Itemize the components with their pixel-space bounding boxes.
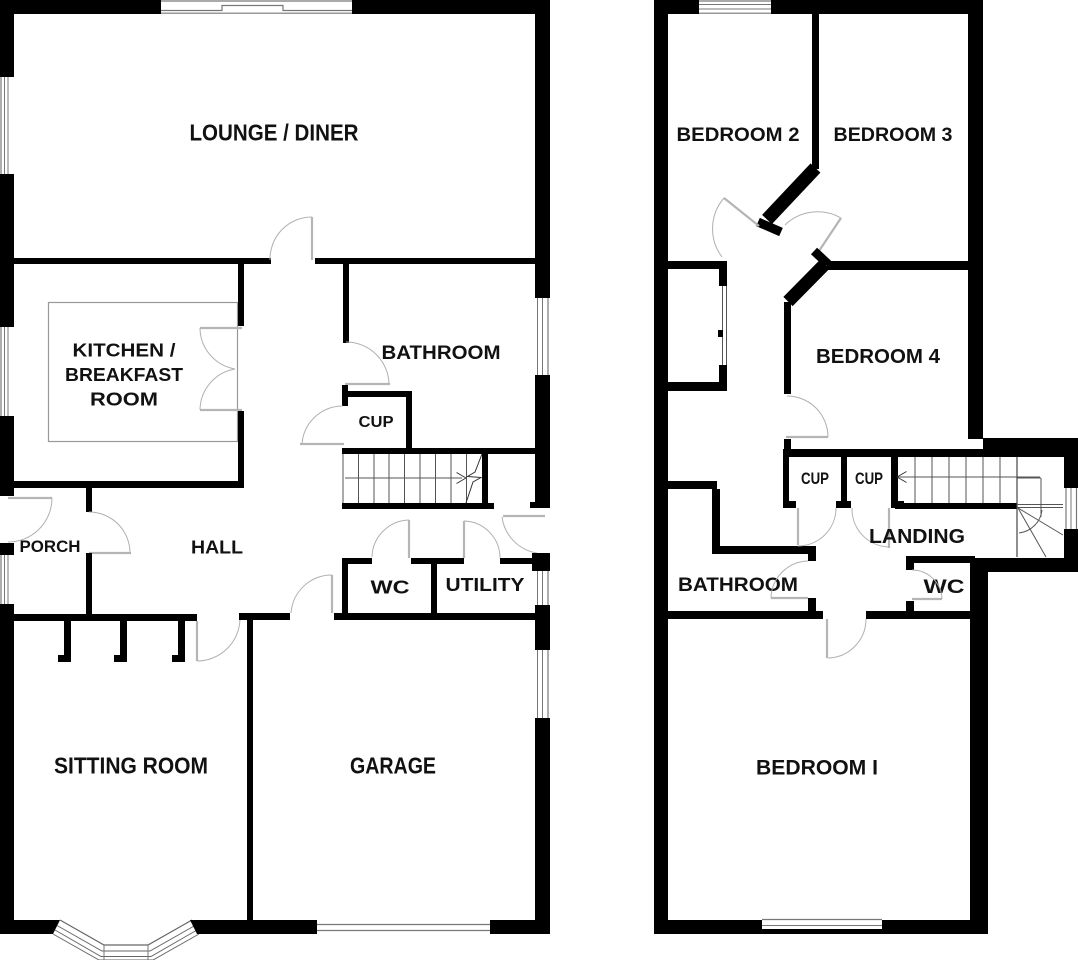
svg-text:WC: WC: [924, 577, 965, 598]
svg-text:CUP: CUP: [801, 469, 829, 488]
svg-text:HALL: HALL: [191, 538, 243, 558]
svg-text:LANDING: LANDING: [869, 526, 965, 548]
svg-text:UTILITY: UTILITY: [446, 574, 526, 595]
svg-text:WC: WC: [371, 577, 410, 598]
svg-text:LOUNGE / DINER: LOUNGE / DINER: [190, 119, 359, 145]
svg-text:CUP: CUP: [855, 469, 883, 488]
svg-text:PORCH: PORCH: [20, 537, 81, 556]
svg-text:BEDROOM 3: BEDROOM 3: [834, 124, 953, 146]
svg-text:GARAGE: GARAGE: [350, 752, 436, 778]
svg-text:BATHROOM: BATHROOM: [382, 343, 501, 364]
svg-text:SITTING ROOM: SITTING ROOM: [54, 752, 208, 778]
svg-text:BREAKFAST: BREAKFAST: [65, 365, 183, 385]
svg-text:BEDROOM 4: BEDROOM 4: [816, 346, 941, 368]
svg-text:CUP: CUP: [359, 414, 394, 431]
svg-text:ROOM: ROOM: [90, 390, 158, 410]
svg-text:BEDROOM I: BEDROOM I: [756, 757, 878, 780]
svg-text:BEDROOM 2: BEDROOM 2: [677, 124, 800, 146]
svg-text:KITCHEN /: KITCHEN /: [73, 341, 176, 361]
svg-text:BATHROOM: BATHROOM: [678, 575, 798, 596]
